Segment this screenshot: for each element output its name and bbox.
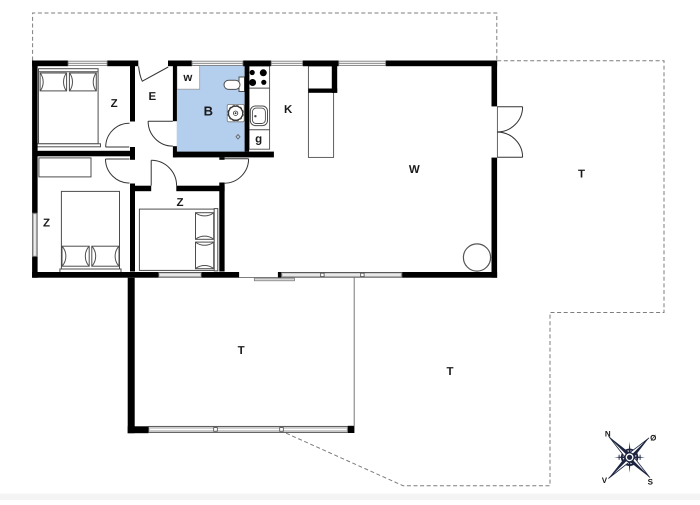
svg-text:B: B (204, 103, 213, 118)
svg-text:w: w (182, 72, 192, 84)
svg-text:g: g (255, 133, 262, 145)
svg-text:K: K (284, 104, 293, 116)
svg-text:Z: Z (176, 197, 183, 209)
svg-text:T: T (238, 345, 245, 357)
svg-text:Z: Z (111, 98, 118, 110)
svg-text:S: S (648, 478, 654, 487)
svg-text:V: V (602, 476, 608, 485)
svg-text:Z: Z (43, 217, 50, 229)
svg-text:T: T (578, 168, 585, 180)
svg-text:E: E (148, 91, 156, 103)
svg-text:N: N (605, 430, 611, 439)
svg-text:T: T (446, 366, 453, 378)
svg-text:Ø: Ø (650, 433, 656, 442)
svg-text:W: W (409, 164, 420, 176)
